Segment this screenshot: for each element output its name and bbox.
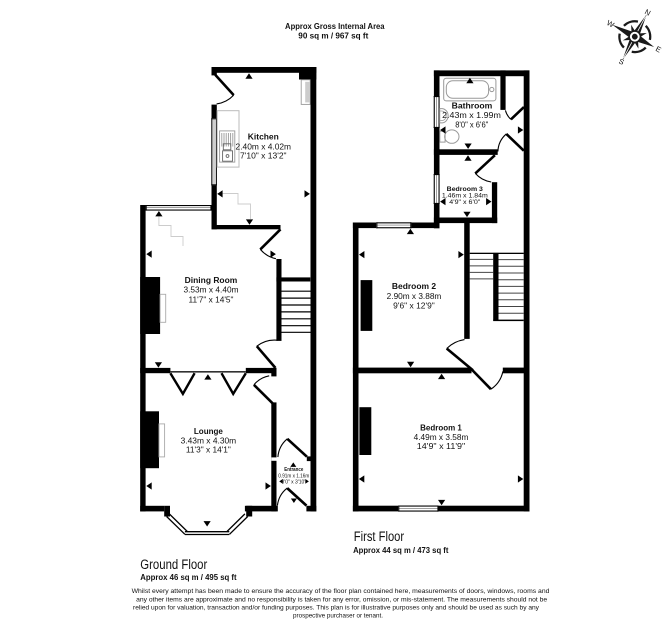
svg-text:First Floor: First Floor xyxy=(354,529,405,544)
svg-text:2.90m x 3.88m: 2.90m x 3.88m xyxy=(387,292,442,301)
svg-text:Bathroom: Bathroom xyxy=(452,101,493,110)
svg-text:8'0" x 6'6": 8'0" x 6'6" xyxy=(455,120,488,129)
svg-text:Approx Gross Internal Area: Approx Gross Internal Area xyxy=(285,22,385,31)
svg-text:relied upon for valuation, tra: relied upon for valuation, transaction a… xyxy=(133,605,540,612)
svg-text:Whilst every attempt has been: Whilst every attempt has been made to en… xyxy=(132,588,550,595)
svg-text:Ground Floor: Ground Floor xyxy=(140,557,207,572)
svg-text:14'9" x 11'9": 14'9" x 11'9" xyxy=(417,442,466,451)
svg-text:2.40m x 4.02m: 2.40m x 4.02m xyxy=(236,142,292,151)
svg-text:prospective purchaser or tenan: prospective purchaser or tenant. xyxy=(293,613,383,620)
svg-text:2.43m x 1.99m: 2.43m x 1.99m xyxy=(442,111,501,120)
svg-text:Entrance: Entrance xyxy=(284,467,303,473)
svg-text:7'10" x 13'2": 7'10" x 13'2" xyxy=(240,152,287,161)
svg-text:11'7" x 14'5": 11'7" x 14'5" xyxy=(189,295,234,304)
svg-text:Approx 46 sq m / 495 sq ft: Approx 46 sq m / 495 sq ft xyxy=(140,573,237,582)
svg-text:3.43m x 4.30m: 3.43m x 4.30m xyxy=(181,436,237,445)
svg-text:any other items are approximat: any other items are approximate and no r… xyxy=(136,597,547,604)
svg-text:3.53m x 4.40m: 3.53m x 4.40m xyxy=(184,286,239,295)
svg-text:Bedroom 1: Bedroom 1 xyxy=(420,424,462,433)
svg-text:Kitchen: Kitchen xyxy=(248,132,279,141)
svg-text:3'0" x 3'10": 3'0" x 3'10" xyxy=(282,479,307,485)
svg-text:Bedroom 2: Bedroom 2 xyxy=(392,282,437,291)
svg-text:4.49m x 3.58m: 4.49m x 3.58m xyxy=(414,433,469,442)
svg-text:Approx 44 sq m / 473 sq ft: Approx 44 sq m / 473 sq ft xyxy=(353,546,449,555)
svg-text:11'3" x 14'1": 11'3" x 14'1" xyxy=(186,445,231,454)
svg-text:4'9" x 6'0": 4'9" x 6'0" xyxy=(449,199,481,206)
svg-text:9'6" x 12'9": 9'6" x 12'9" xyxy=(393,301,435,310)
svg-text:Dining Room: Dining Room xyxy=(185,276,238,285)
svg-text:Lounge: Lounge xyxy=(194,427,224,436)
svg-text:90 sq m / 967 sq ft: 90 sq m / 967 sq ft xyxy=(298,32,368,41)
